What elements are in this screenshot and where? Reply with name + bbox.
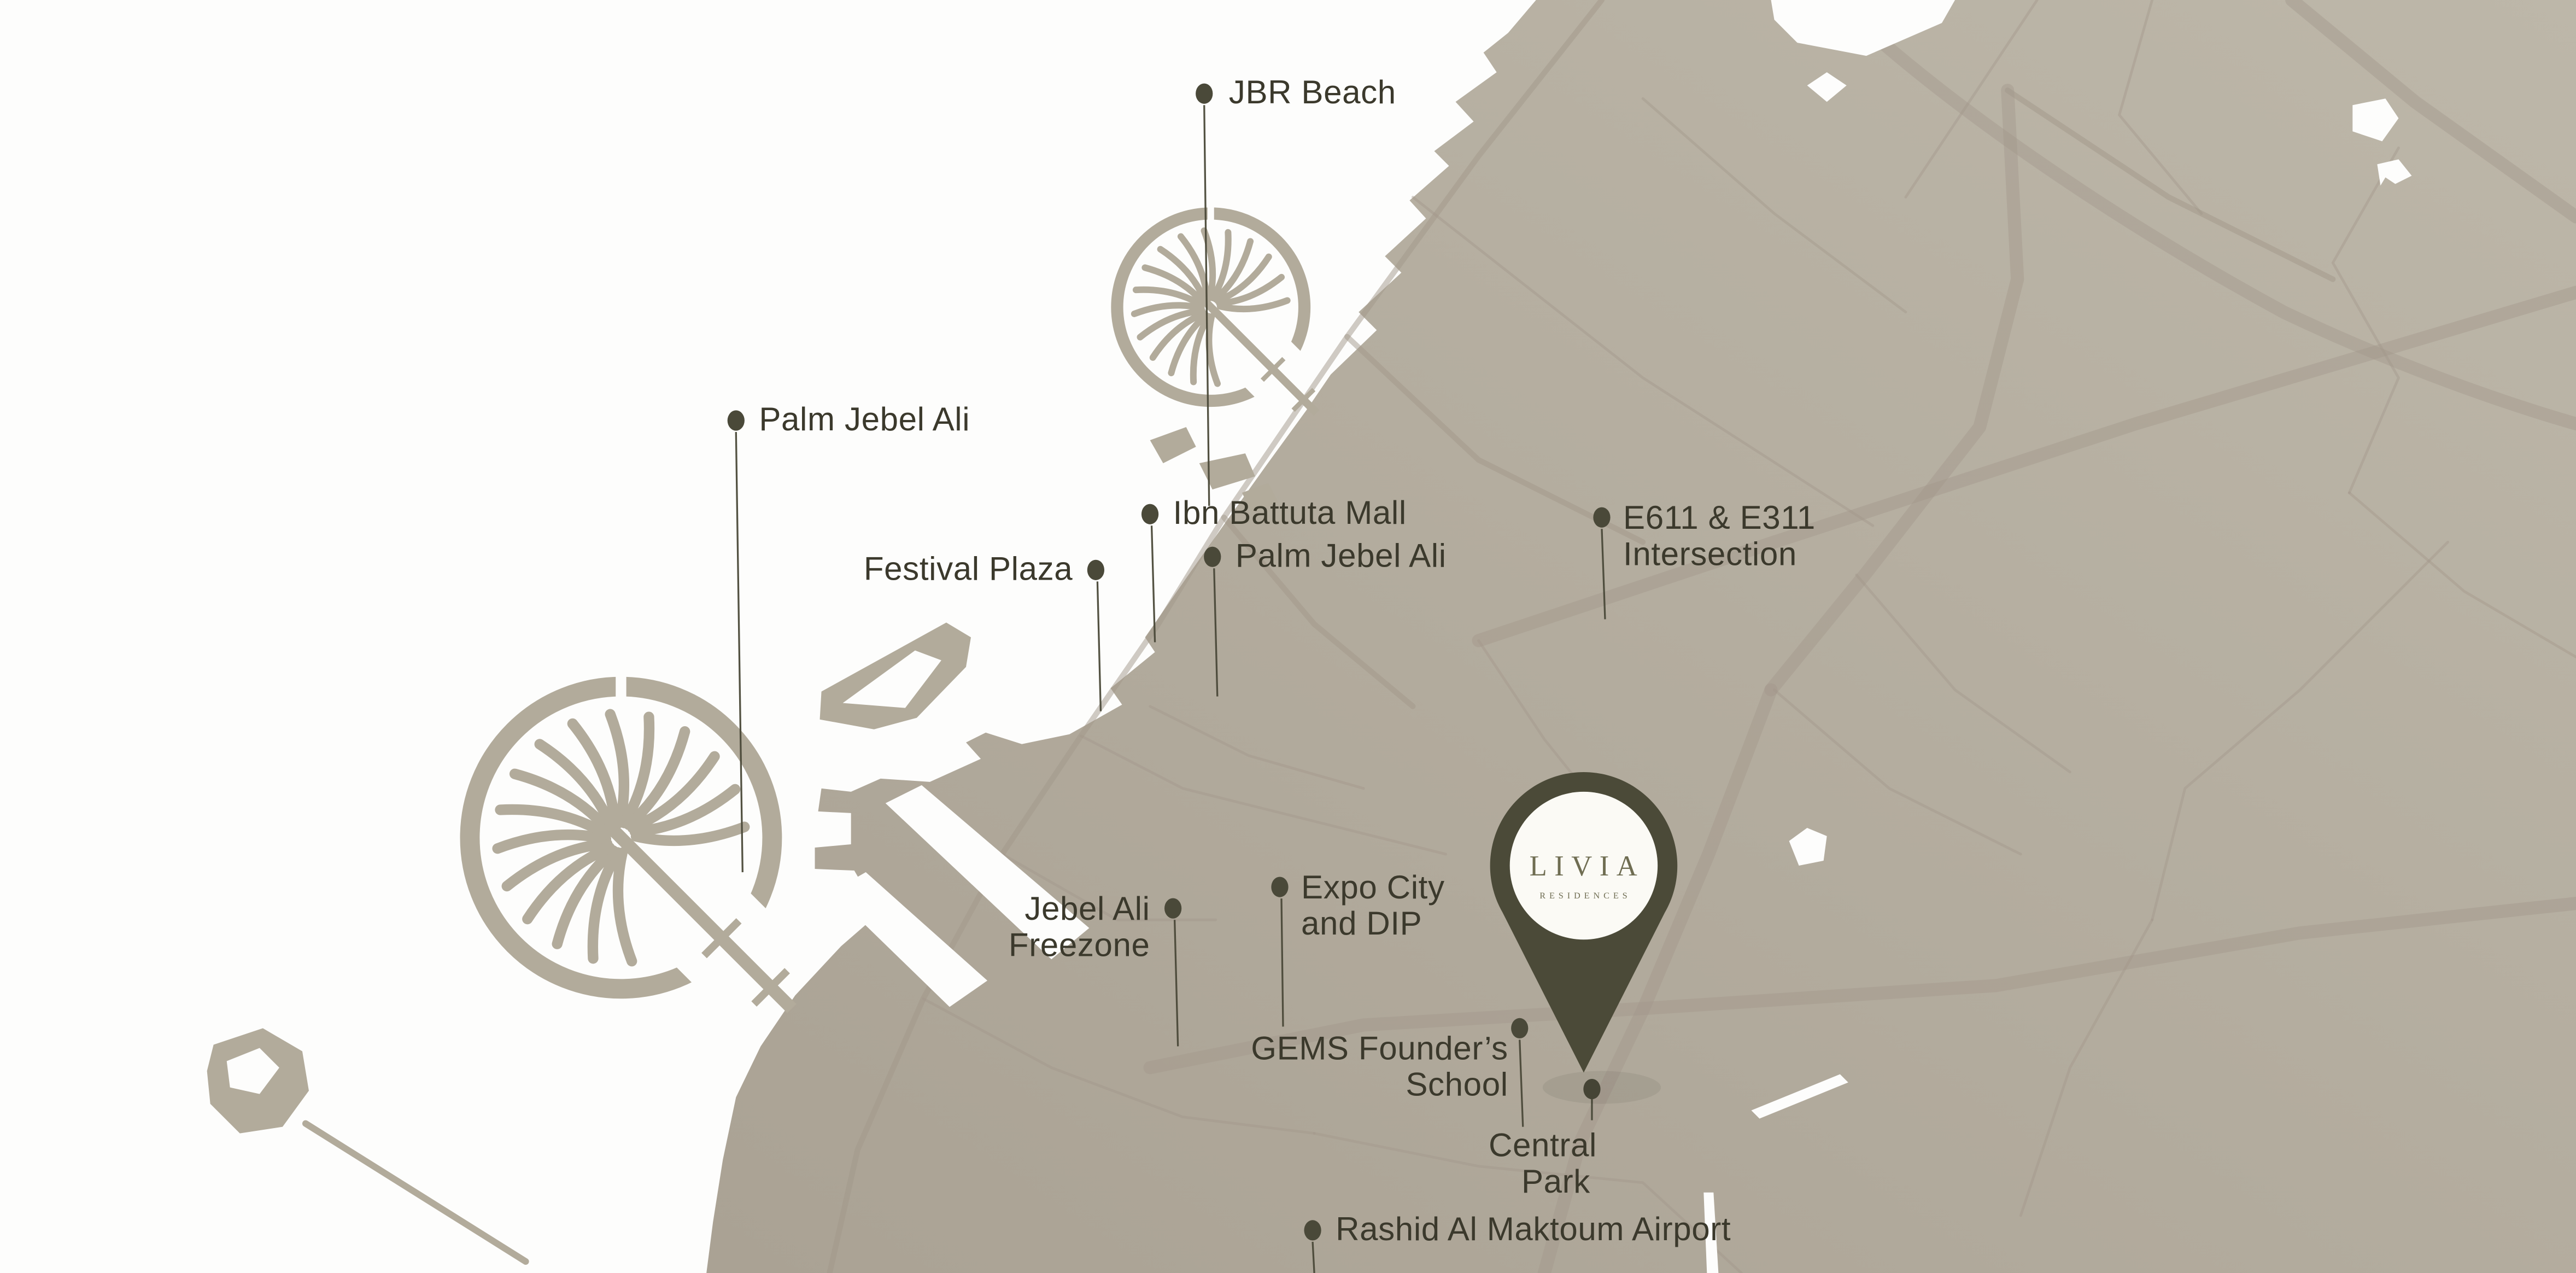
label-text: Expo City [1301, 869, 1445, 906]
location-dot [1511, 1018, 1528, 1038]
label-text: GEMS Founder’s [1251, 1030, 1508, 1067]
location-dot [728, 410, 745, 430]
pin-shadow [1543, 1071, 1661, 1104]
label-text: E611 & E311 [1623, 499, 1816, 536]
label-text: and DIP [1301, 905, 1422, 942]
label-text: Jebel Ali [1024, 890, 1150, 927]
label-text: Rashid Al Maktoum Airport [1336, 1211, 1731, 1247]
label-text: Intersection [1623, 535, 1797, 572]
location-dot [1141, 504, 1158, 524]
map-canvas: JBR Beach Palm Jebel Ali Ibn Battuta Mal… [0, 0, 2576, 1273]
location-map: JBR Beach Palm Jebel Ali Ibn Battuta Mal… [0, 0, 2576, 1273]
location-dot [1204, 547, 1221, 567]
livia-logo-text: LIVIA [1530, 850, 1645, 882]
label-text: Palm Jebel Ali [1236, 537, 1447, 574]
label-text: JBR Beach [1229, 74, 1396, 110]
location-dot [1271, 877, 1288, 897]
location-dot [1164, 898, 1181, 919]
location-dot [1087, 560, 1104, 580]
label-text: Freezone [1009, 926, 1150, 963]
location-dot [1593, 507, 1610, 528]
location-dot [1304, 1220, 1321, 1240]
label-text: Palm Jebel Ali [759, 401, 970, 437]
label-text: School [1406, 1066, 1508, 1103]
label-text: Park [1521, 1163, 1590, 1200]
label-text: Festival Plaza [864, 550, 1073, 587]
label-text: Ibn Battuta Mall [1173, 494, 1407, 531]
label-text: Central [1489, 1127, 1597, 1164]
location-dot [1196, 84, 1213, 104]
livia-logo-subtext: RESIDENCES [1539, 891, 1631, 901]
